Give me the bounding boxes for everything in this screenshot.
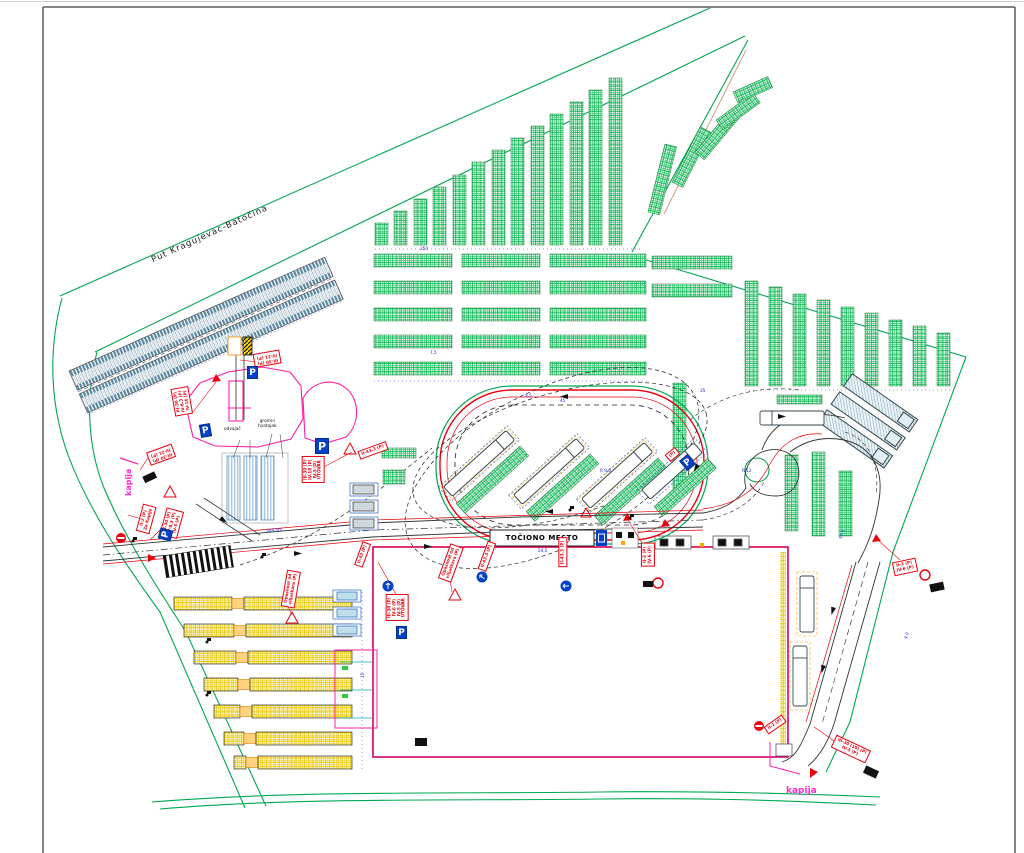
gate-west-label: kapija [124,469,133,496]
dimension-label: R 9,0 [600,468,611,473]
parking-sign: P [247,366,258,379]
roadside-parking-rows [69,257,344,414]
site-plan-sheet: Put Kragujevac-Batočina TOČIONO MESTO ka… [0,0,1024,853]
building-door [415,738,427,746]
west-dock-bays [333,590,361,636]
site-plan-canvas [0,0,1024,853]
warehouse-building [333,536,788,757]
parking-field-north [375,77,773,249]
dimension-label: 35 [700,388,705,393]
truck-east [760,411,824,425]
dimension-label: R 12 [742,468,752,473]
sign-plate: II-43.3 (P) [558,538,567,568]
small-vehicle-bays [350,448,416,530]
parking-sign: P [199,423,212,438]
dimension-label: 15 [360,673,365,678]
separator-label: odvajač [224,428,241,433]
sign-plate: II-3 (P) IV-6 (P) [641,543,655,567]
parking-sign: P [396,626,407,639]
parking-field-center [374,254,648,381]
parking-sign: P [315,438,329,454]
sign-plate: III-30 (P) IV-6 (P) IV-5 (P) UTOVAR [386,594,409,621]
dimension-label: 24,5 [538,548,547,553]
dimension-label: 45 [560,398,565,403]
truck-bays-east [818,374,917,468]
parking-field-east [652,256,955,536]
trap-label: gromni hvatajak [258,420,277,429]
fuel-point-label: TOČIONO MESTO [494,534,590,542]
gate-south-label: kapija [786,786,817,796]
dimension-label: 7,5 [430,350,437,355]
dimension-label: 4,5 [525,393,532,398]
dimension-label: 250 [420,246,428,251]
sign-plate: III-30 (P) IV-18 (P) IV-5 (P) UTOVAR [302,456,325,483]
parked-truck [793,576,814,706]
